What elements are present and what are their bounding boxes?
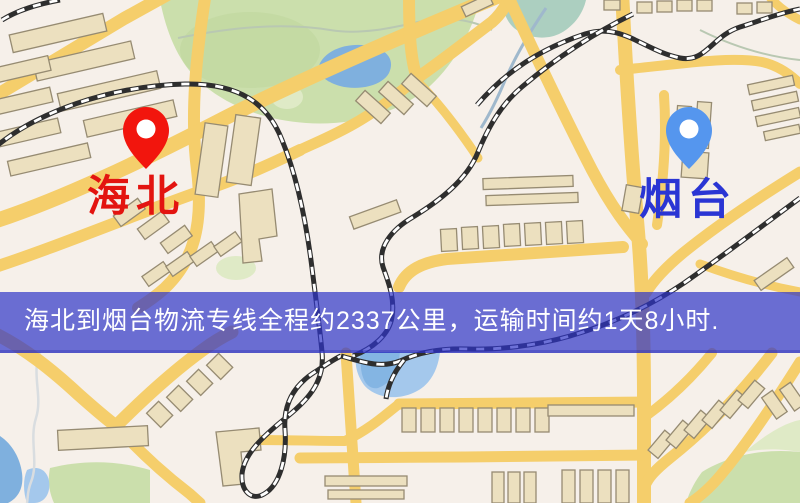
map-background [0,0,800,503]
route-info-text: 海北到烟台物流专线全程约2337公里，运输时间约1天8小时. [24,301,719,337]
destination-pin-icon [665,106,713,170]
origin-pin-icon [122,106,170,170]
railway-corner-segment [2,0,60,20]
route-info-banner: 海北到烟台物流专线全程约2337公里，运输时间约1天8小时. [0,292,800,353]
destination-label: 烟台 [639,179,737,222]
origin-label: 海北 [87,176,185,219]
map-image: 海北 烟台 海北到烟台物流专线全程约2337公里，运输时间约1天8小时. [0,0,800,503]
